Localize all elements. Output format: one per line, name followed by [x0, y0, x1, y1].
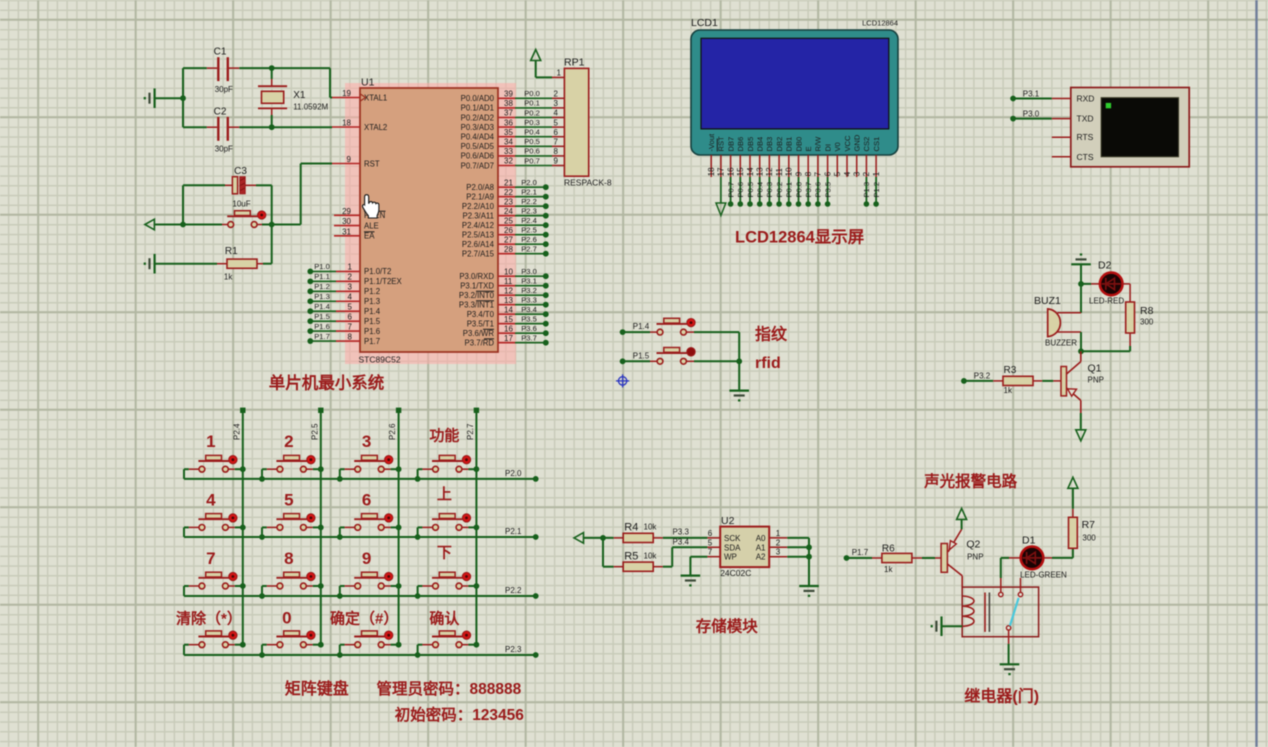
svg-text:3: 3 [348, 283, 353, 292]
svg-text:P0.2: P0.2 [775, 182, 784, 198]
svg-text:28: 28 [504, 245, 513, 254]
svg-text:P3.4: P3.4 [672, 537, 689, 546]
svg-text:P0.4: P0.4 [756, 182, 765, 198]
svg-text:P1.3: P1.3 [862, 182, 871, 198]
svg-text:P1.5: P1.5 [314, 312, 330, 321]
svg-text:P3.6: P3.6 [814, 182, 823, 198]
svg-text:P1.7: P1.7 [364, 337, 380, 346]
svg-text:P1.2: P1.2 [872, 182, 881, 198]
svg-text:P1.6: P1.6 [364, 327, 380, 336]
svg-text:5: 5 [348, 302, 353, 311]
svg-text:39: 39 [504, 90, 513, 99]
svg-text:指纹: 指纹 [755, 325, 788, 344]
svg-text:LCD12864: LCD12864 [862, 19, 898, 28]
svg-text:P0.5/AD5: P0.5/AD5 [461, 142, 495, 151]
svg-text:C1: C1 [214, 47, 227, 58]
svg-text:P2.7: P2.7 [466, 423, 475, 440]
svg-text:10k: 10k [644, 523, 658, 532]
svg-text:30: 30 [342, 217, 351, 226]
svg-text:D2: D2 [1098, 260, 1112, 272]
svg-text:P3.5: P3.5 [521, 315, 537, 324]
svg-text:PNP: PNP [967, 553, 983, 562]
svg-text:R4: R4 [624, 522, 638, 534]
svg-text:4: 4 [206, 490, 216, 509]
svg-text:24: 24 [504, 207, 513, 216]
svg-text:P3.1: P3.1 [521, 277, 537, 286]
svg-text:6: 6 [708, 529, 713, 538]
svg-text:36: 36 [504, 118, 513, 127]
svg-text:P3.1: P3.1 [1023, 89, 1040, 98]
svg-text:R7: R7 [1082, 519, 1096, 531]
svg-text:10k: 10k [644, 552, 658, 561]
svg-text:7: 7 [814, 171, 823, 176]
svg-text:7: 7 [708, 548, 713, 557]
svg-text:P3.0/RXD: P3.0/RXD [459, 272, 494, 281]
svg-text:27: 27 [504, 235, 513, 244]
svg-text:VCC: VCC [843, 135, 852, 152]
svg-text:17: 17 [717, 167, 726, 176]
svg-text:33: 33 [504, 147, 513, 156]
svg-text:P3.7/RD: P3.7/RD [465, 339, 495, 348]
svg-text:CS1: CS1 [872, 137, 881, 152]
svg-text:18: 18 [707, 167, 716, 176]
svg-text:BUZZER: BUZZER [1045, 339, 1077, 348]
svg-text:rfid: rfid [755, 355, 781, 372]
svg-text:P0.6: P0.6 [524, 147, 540, 156]
svg-text:R6: R6 [882, 544, 895, 555]
svg-text:P1.5: P1.5 [364, 317, 381, 326]
svg-text:P3.0: P3.0 [521, 267, 537, 276]
svg-text:LED-GREEN: LED-GREEN [1020, 571, 1067, 580]
svg-text:3: 3 [554, 99, 559, 108]
svg-text:P1.6: P1.6 [314, 322, 330, 331]
svg-text:300: 300 [1140, 318, 1154, 327]
svg-text:TXD: TXD [1077, 114, 1094, 124]
svg-text:初始密码：123456: 初始密码：123456 [395, 705, 525, 724]
svg-text:16: 16 [726, 167, 735, 176]
svg-text:P2.6/A14: P2.6/A14 [462, 240, 495, 249]
svg-text:P0.4/AD4: P0.4/AD4 [461, 133, 495, 142]
svg-text:4: 4 [554, 109, 559, 118]
svg-text:30pF: 30pF [215, 145, 233, 154]
svg-text:10: 10 [504, 267, 513, 276]
svg-text:C3: C3 [234, 166, 247, 177]
svg-text:Q2: Q2 [966, 539, 980, 551]
svg-text:1: 1 [776, 529, 781, 538]
svg-text:34: 34 [504, 138, 513, 147]
svg-text:U1: U1 [361, 77, 375, 89]
svg-text:P0.5: P0.5 [524, 137, 540, 146]
svg-text:P1.3: P1.3 [314, 292, 330, 301]
svg-text:R5: R5 [624, 551, 638, 563]
svg-text:32: 32 [504, 157, 513, 166]
svg-text:31: 31 [342, 227, 351, 236]
svg-text:P3.3: P3.3 [672, 528, 689, 537]
svg-text:P2.3: P2.3 [521, 207, 537, 216]
svg-text:11: 11 [775, 167, 784, 176]
svg-text:DB2: DB2 [775, 137, 784, 152]
svg-text:P1.4: P1.4 [314, 302, 330, 311]
svg-text:23: 23 [504, 197, 513, 206]
svg-text:37: 37 [504, 109, 513, 118]
svg-text:-Vout: -Vout [707, 133, 716, 152]
svg-text:12: 12 [504, 286, 513, 295]
svg-text:P0.1/AD1: P0.1/AD1 [461, 104, 494, 113]
svg-text:P3.2: P3.2 [521, 286, 537, 295]
svg-text:38: 38 [504, 99, 513, 108]
svg-text:R1: R1 [225, 246, 238, 257]
svg-text:2: 2 [776, 538, 781, 547]
svg-text:P3.7: P3.7 [521, 334, 537, 343]
svg-text:P3.3/INT1: P3.3/INT1 [459, 301, 494, 310]
svg-text:DB7: DB7 [726, 137, 735, 152]
svg-text:P2.7/A15: P2.7/A15 [462, 250, 495, 259]
svg-text:P2.4/A12: P2.4/A12 [462, 221, 494, 230]
svg-text:9: 9 [362, 549, 371, 568]
svg-text:清除（*）: 清除（*） [176, 610, 242, 628]
svg-text:P1.3: P1.3 [364, 297, 380, 306]
svg-text:6: 6 [348, 312, 353, 321]
svg-text:8: 8 [804, 171, 813, 176]
svg-text:DB0: DB0 [794, 137, 803, 152]
svg-text:P3.7: P3.7 [804, 182, 813, 198]
svg-text:功能: 功能 [429, 427, 459, 445]
svg-text:1: 1 [348, 263, 353, 272]
svg-text:LCD1: LCD1 [691, 17, 718, 29]
svg-text:P3.0: P3.0 [1023, 109, 1040, 118]
svg-text:24C02C: 24C02C [720, 568, 751, 578]
svg-text:26: 26 [504, 226, 513, 235]
svg-text:2: 2 [284, 432, 293, 451]
svg-text:P0.6/AD6: P0.6/AD6 [461, 152, 494, 161]
svg-text:P2.1: P2.1 [505, 527, 522, 536]
svg-text:P0.3/AD3: P0.3/AD3 [461, 123, 494, 132]
svg-text:P3.5/T1: P3.5/T1 [467, 320, 494, 329]
svg-text:RTS: RTS [1077, 132, 1094, 142]
svg-text:P2.2/A10: P2.2/A10 [462, 202, 495, 211]
svg-text:WP: WP [724, 553, 737, 562]
svg-text:SCK: SCK [724, 534, 741, 543]
svg-text:GND: GND [853, 134, 862, 151]
svg-text:P0.5: P0.5 [746, 182, 755, 198]
svg-text:下: 下 [437, 545, 452, 562]
svg-text:A0: A0 [756, 534, 766, 543]
svg-text:P2.1: P2.1 [521, 188, 537, 197]
svg-text:P1.0/T2: P1.0/T2 [364, 267, 391, 276]
svg-text:P2.6: P2.6 [388, 423, 397, 440]
svg-text:LED-RED: LED-RED [1089, 297, 1124, 306]
svg-text:P2.4: P2.4 [521, 216, 537, 225]
svg-text:P0.7: P0.7 [524, 156, 540, 165]
svg-text:DB1: DB1 [785, 137, 794, 152]
svg-text:R3: R3 [1004, 365, 1017, 376]
svg-text:矩阵键盘: 矩阵键盘 [285, 679, 349, 698]
svg-text:1: 1 [206, 432, 215, 451]
svg-text:C2: C2 [214, 107, 227, 118]
svg-text:P0.0/AD0: P0.0/AD0 [461, 94, 495, 103]
svg-text:P1.0: P1.0 [314, 262, 330, 271]
svg-text:P2.2: P2.2 [505, 586, 522, 595]
svg-text:5: 5 [554, 118, 559, 127]
svg-text:E: E [804, 146, 813, 151]
svg-text:声光报警电路: 声光报警电路 [923, 472, 1018, 491]
svg-text:30pF: 30pF [215, 85, 233, 94]
svg-text:P2.0/A8: P2.0/A8 [466, 183, 494, 192]
svg-text:RST: RST [364, 159, 380, 168]
svg-text:BUZ1: BUZ1 [1034, 295, 1061, 307]
svg-text:X1: X1 [293, 90, 306, 101]
svg-text:9: 9 [347, 155, 352, 164]
svg-text:EA: EA [364, 232, 375, 241]
svg-text:10uF: 10uF [232, 200, 250, 209]
svg-text:5: 5 [284, 490, 293, 509]
svg-text:1k: 1k [884, 565, 893, 574]
svg-text:22: 22 [504, 188, 513, 197]
svg-text:2: 2 [862, 171, 871, 176]
svg-text:17: 17 [504, 334, 513, 343]
svg-text:4: 4 [843, 171, 852, 176]
svg-text:ALE: ALE [364, 221, 379, 230]
svg-text:DB5: DB5 [746, 137, 755, 152]
svg-text:P0.1: P0.1 [785, 182, 794, 198]
svg-text:29: 29 [342, 207, 351, 216]
svg-text:RESPACK-8: RESPACK-8 [564, 178, 612, 188]
svg-text:U2: U2 [721, 515, 735, 527]
svg-text:3: 3 [853, 171, 862, 176]
svg-text:P1.2: P1.2 [314, 282, 330, 291]
svg-text:1: 1 [557, 68, 562, 77]
svg-text:RST: RST [717, 136, 726, 152]
svg-text:P1.5: P1.5 [633, 351, 650, 360]
svg-text:14: 14 [746, 167, 755, 176]
svg-text:P0.4: P0.4 [524, 128, 540, 137]
svg-text:P2.0: P2.0 [505, 469, 522, 478]
svg-text:6: 6 [362, 490, 371, 509]
svg-text:存储模块: 存储模块 [696, 617, 759, 636]
svg-text:10: 10 [785, 167, 794, 176]
svg-text:21: 21 [504, 178, 513, 187]
svg-text:9: 9 [794, 171, 803, 176]
svg-text:P2.3/A11: P2.3/A11 [463, 212, 495, 221]
svg-text:P2.6: P2.6 [521, 235, 537, 244]
svg-text:15: 15 [504, 315, 513, 324]
svg-text:P2.5/A13: P2.5/A13 [462, 231, 494, 240]
svg-text:P3.5: P3.5 [823, 182, 832, 198]
svg-text:P0.7: P0.7 [726, 182, 735, 198]
svg-text:LCD12864显示屏: LCD12864显示屏 [735, 228, 864, 247]
svg-text:P1.4: P1.4 [633, 322, 650, 331]
svg-text:DB3: DB3 [765, 137, 774, 152]
svg-text:P3.4: P3.4 [521, 305, 537, 314]
svg-text:P2.5: P2.5 [310, 423, 319, 440]
svg-text:2: 2 [348, 273, 353, 282]
svg-text:P0.2: P0.2 [524, 108, 540, 117]
svg-text:13: 13 [504, 296, 513, 305]
svg-text:P2.7: P2.7 [521, 245, 537, 254]
svg-text:XTAL2: XTAL2 [364, 123, 387, 132]
svg-text:STC89C52: STC89C52 [359, 355, 401, 365]
svg-text:8: 8 [554, 147, 559, 156]
svg-text:14: 14 [504, 305, 513, 314]
svg-text:11: 11 [504, 277, 513, 286]
svg-text:Q1: Q1 [1088, 363, 1102, 375]
svg-text:2: 2 [554, 90, 559, 99]
svg-text:R/W: R/W [814, 136, 823, 152]
svg-text:7: 7 [554, 138, 559, 147]
svg-text:D1: D1 [1022, 535, 1036, 547]
svg-text:P0.0: P0.0 [524, 89, 540, 98]
svg-text:P1.7: P1.7 [314, 332, 330, 341]
svg-text:SDA: SDA [724, 543, 741, 552]
svg-text:P0.1: P0.1 [524, 99, 540, 108]
svg-text:A2: A2 [756, 553, 766, 562]
svg-text:PNP: PNP [1088, 376, 1104, 385]
svg-text:1k: 1k [224, 273, 233, 282]
svg-text:DB6: DB6 [736, 137, 745, 152]
svg-text:6: 6 [823, 171, 832, 176]
svg-text:上: 上 [437, 486, 452, 503]
svg-text:5: 5 [708, 538, 713, 547]
svg-text:确认: 确认 [429, 610, 460, 628]
svg-text:P1.1: P1.1 [314, 272, 330, 281]
svg-text:25: 25 [504, 216, 513, 225]
svg-text:P2.1/A9: P2.1/A9 [466, 193, 494, 202]
svg-text:16: 16 [504, 324, 513, 333]
svg-text:8: 8 [284, 549, 293, 568]
svg-text:3: 3 [776, 548, 781, 557]
svg-text:18: 18 [342, 119, 351, 128]
svg-text:P3.6: P3.6 [521, 324, 537, 333]
svg-text:1k: 1k [1004, 386, 1013, 395]
svg-text:CTS: CTS [1077, 152, 1094, 162]
svg-text:13: 13 [756, 167, 765, 176]
svg-text:RXD: RXD [1077, 94, 1095, 104]
svg-text:P1.7: P1.7 [852, 548, 869, 557]
svg-text:P0.7/AD7: P0.7/AD7 [461, 161, 494, 170]
svg-text:XTAL1: XTAL1 [364, 93, 387, 102]
svg-text:P3.3: P3.3 [521, 296, 537, 305]
svg-text:P1.2: P1.2 [364, 287, 380, 296]
svg-text:P0.0: P0.0 [794, 182, 803, 198]
svg-text:DB4: DB4 [756, 137, 765, 152]
svg-text:A1: A1 [756, 543, 766, 552]
svg-text:CS2: CS2 [862, 137, 871, 152]
svg-text:P3.6/WR: P3.6/WR [463, 329, 495, 338]
svg-text:4: 4 [348, 292, 353, 301]
svg-text:15: 15 [736, 167, 745, 176]
svg-text:P3.1/TXD: P3.1/TXD [460, 282, 494, 291]
svg-text:0: 0 [282, 609, 291, 628]
svg-text:RP1: RP1 [564, 57, 585, 69]
svg-text:3: 3 [362, 432, 371, 451]
svg-text:V0: V0 [833, 142, 842, 151]
svg-text:P2.2: P2.2 [521, 197, 537, 206]
svg-text:P1.4: P1.4 [364, 307, 381, 316]
svg-text:300: 300 [1082, 534, 1096, 543]
svg-text:P0.6: P0.6 [736, 182, 745, 198]
svg-text:6: 6 [554, 128, 559, 137]
svg-text:P0.3: P0.3 [765, 182, 774, 198]
svg-text:P3.2/INT0: P3.2/INT0 [459, 291, 495, 300]
svg-text:单片机最小系统: 单片机最小系统 [269, 373, 385, 393]
svg-text:19: 19 [342, 89, 351, 98]
svg-text:11.0592M: 11.0592M [293, 103, 328, 112]
svg-text:12: 12 [765, 167, 774, 176]
svg-text:P3.4/T0: P3.4/T0 [467, 310, 495, 319]
svg-text:P0.2/AD2: P0.2/AD2 [461, 113, 494, 122]
svg-text:5: 5 [833, 171, 842, 176]
svg-text:管理员密码：888888: 管理员密码：888888 [377, 679, 522, 698]
svg-text:P1.1/T2EX: P1.1/T2EX [364, 277, 403, 286]
svg-text:P2.3: P2.3 [505, 645, 522, 654]
svg-text:P2.0: P2.0 [521, 178, 537, 187]
svg-text:确定（#）: 确定（#） [330, 610, 398, 628]
svg-text:P3.2: P3.2 [974, 372, 991, 381]
svg-text:1: 1 [872, 171, 881, 176]
svg-text:P2.5: P2.5 [521, 226, 537, 235]
svg-text:35: 35 [504, 128, 513, 137]
svg-text:9: 9 [554, 157, 559, 166]
svg-text:继电器(门): 继电器(门) [964, 687, 1039, 706]
svg-text:P0.3: P0.3 [524, 118, 540, 127]
svg-text:DI: DI [823, 144, 832, 152]
svg-text:P2.4: P2.4 [232, 423, 241, 440]
svg-text:7: 7 [206, 549, 215, 568]
svg-text:8: 8 [348, 332, 353, 341]
svg-text:R8: R8 [1140, 305, 1154, 317]
svg-text:7: 7 [348, 322, 353, 331]
